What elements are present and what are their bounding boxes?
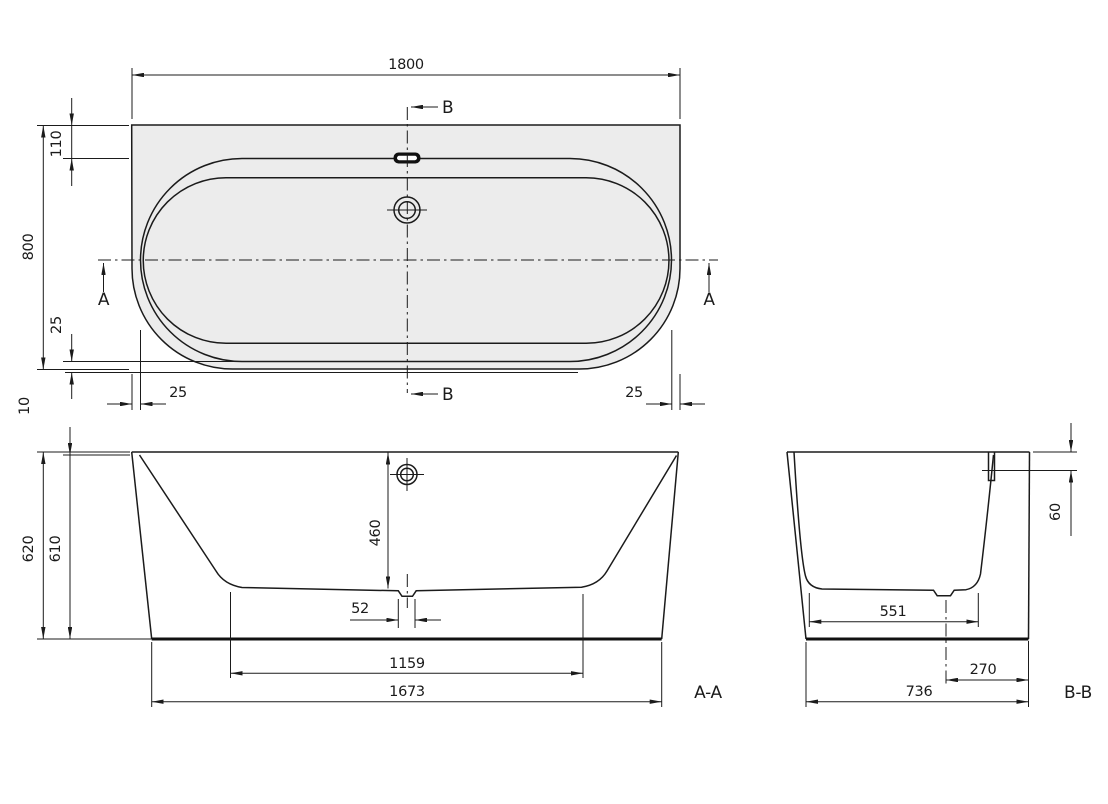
- dim-floor-width: 551: [809, 593, 978, 627]
- section-b-letter: B: [442, 385, 453, 405]
- dim-text-25: 25: [49, 316, 65, 334]
- dim-apron-offset: 10: [17, 397, 33, 415]
- outer-face-left: [132, 452, 152, 639]
- section-mark-b-bottom: B: [411, 385, 453, 405]
- section-a-letter: A: [98, 290, 110, 310]
- dim-text-60: 60: [1048, 503, 1064, 521]
- dim-text-110: 110: [49, 131, 65, 158]
- dim-text-460: 460: [368, 520, 384, 547]
- section-mark-b-top: B: [411, 98, 453, 118]
- dim-text-551: 551: [880, 604, 907, 620]
- section-mark-a-left: A: [98, 263, 110, 310]
- dim-floor-length: 1159: [231, 592, 584, 678]
- basin-profile: [140, 455, 677, 596]
- drawing-canvas: A A B B 1800 800: [0, 0, 1108, 804]
- dim-text-25: 25: [625, 385, 643, 401]
- dim-text-10: 10: [17, 397, 33, 415]
- dim-rim-back: 110: [49, 98, 129, 186]
- dim-base-length: 1673: [152, 642, 662, 707]
- dim-text-1673: 1673: [389, 684, 425, 700]
- dim-overflow-depth: 60: [1048, 423, 1071, 536]
- dim-text-800: 800: [21, 234, 37, 261]
- extension-line: [132, 68, 680, 119]
- dim-inner-height: 610: [48, 427, 70, 639]
- outer-face-right: [662, 452, 679, 639]
- overflow-crosshair: [390, 458, 424, 491]
- dim-text-620: 620: [21, 536, 37, 563]
- outer-face-right: [1029, 452, 1030, 639]
- outer-face-left: [787, 452, 806, 639]
- section-b-letter: B: [442, 98, 453, 118]
- dim-text-1159: 1159: [389, 656, 425, 672]
- section-mark-a-right: A: [703, 263, 715, 310]
- dim-text-736: 736: [906, 684, 933, 700]
- dim-plan-depth: 800: [21, 126, 129, 370]
- dim-depth-to-floor: 460: [368, 453, 388, 589]
- extension-line: [132, 330, 141, 410]
- technical-drawing: A A B B 1800 800: [0, 0, 1108, 804]
- dim-text-25: 25: [169, 385, 187, 401]
- dim-text-610: 610: [48, 536, 64, 563]
- basin-profile: [794, 452, 994, 596]
- dim-plan-length: 1800: [132, 57, 680, 119]
- extension-line: [672, 330, 680, 410]
- section-bb-view: 60 551 270 736 B-B: [787, 423, 1092, 707]
- dim-drain-offset: 270: [946, 641, 1029, 685]
- extension-line: [398, 599, 415, 628]
- dim-text-1800: 1800: [388, 57, 424, 73]
- section-a-letter: A: [703, 290, 715, 310]
- plan-view: A A B B 1800 800: [17, 57, 718, 415]
- dim-drain-recess: 52: [350, 599, 441, 628]
- dim-text-270: 270: [970, 662, 997, 678]
- section-bb-label: B-B: [1064, 683, 1092, 703]
- dim-text-52: 52: [351, 601, 369, 617]
- section-aa-label: A-A: [694, 683, 722, 703]
- dim-overall-height: 620: [21, 452, 130, 639]
- section-aa-view: 460 52 620 610 1159: [21, 427, 723, 707]
